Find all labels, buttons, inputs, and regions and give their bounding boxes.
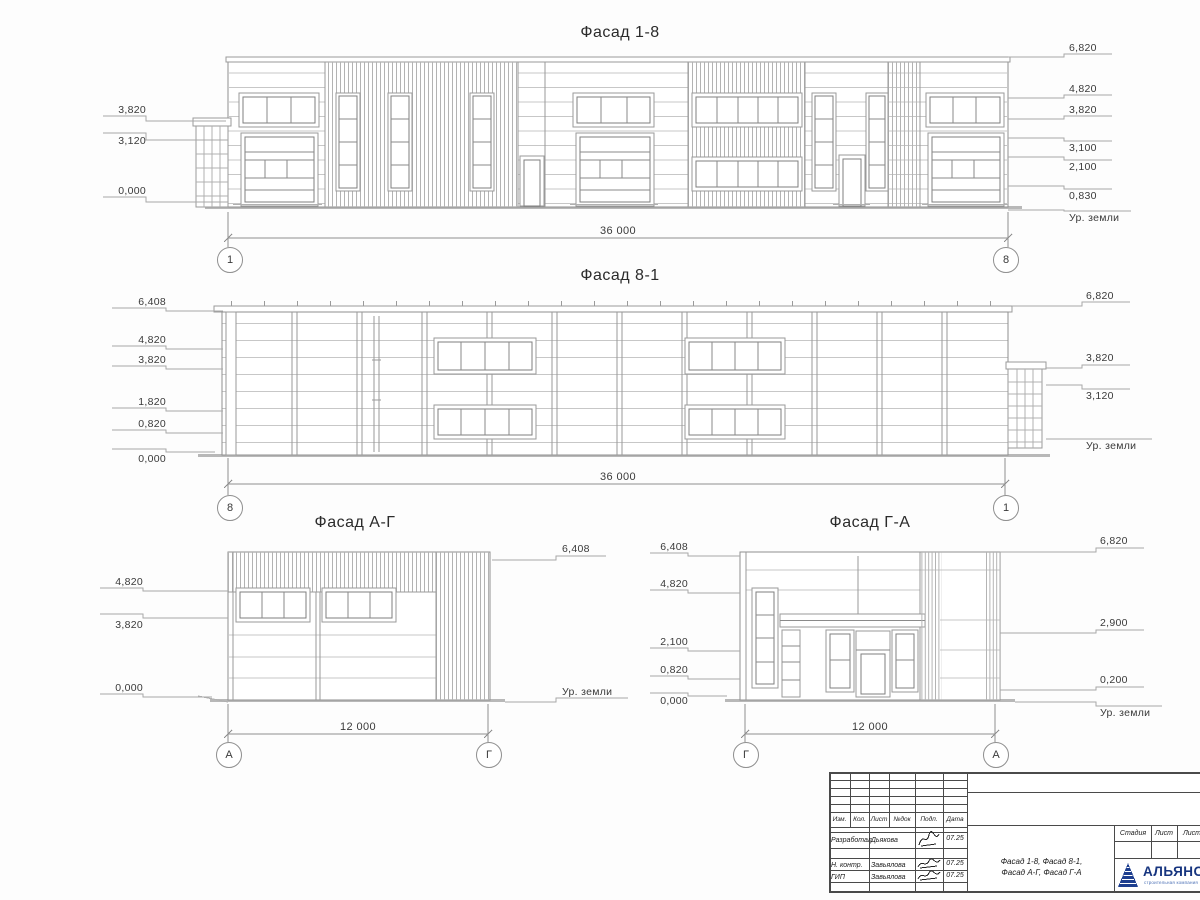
dimension-label: 12 000 — [308, 721, 408, 733]
elevation-mark: 6,408 — [645, 541, 688, 553]
signature-date: 07.25 — [943, 860, 967, 867]
document-title-line1: Фасад 1-8, Фасад 8-1, — [969, 856, 1114, 867]
axis-bubble: А — [216, 742, 242, 768]
facade-g-a-title: Фасад Г-А — [770, 514, 970, 532]
elevation-mark: Ур. земли — [1100, 707, 1150, 719]
elevation-mark: 0,000 — [110, 453, 166, 465]
facade-1-8-title: Фасад 1-8 — [520, 24, 720, 42]
facade-1-8-drawing — [103, 54, 1131, 247]
axis-bubble: А — [983, 742, 1009, 768]
drawing-sheet: { "drawing": { "facade_18": { "title": "… — [0, 0, 1200, 900]
revision-col-header: Подп. — [915, 813, 943, 826]
elevation-mark: 4,820 — [1069, 83, 1097, 95]
elevation-mark: 0,200 — [1100, 674, 1128, 686]
facade-8-1-title: Фасад 8-1 — [520, 267, 720, 285]
company-subtitle: строительная компания — [1144, 880, 1198, 885]
dimension-label: 36 000 — [568, 471, 668, 483]
elevation-mark: 3,820 — [102, 104, 146, 116]
signer-role: Н. контр. — [831, 860, 863, 871]
stage-header: Стадия — [1115, 827, 1151, 841]
elevation-mark: 3,120 — [102, 135, 146, 147]
dimension-label: 36 000 — [568, 225, 668, 237]
elevation-mark: 0,820 — [110, 418, 166, 430]
axis-bubble: 1 — [217, 247, 243, 273]
elevation-mark: 0,000 — [98, 682, 143, 694]
elevation-mark: 0,000 — [102, 185, 146, 197]
company-name: АЛЬЯНС — [1143, 864, 1200, 879]
facade-8-1-drawing — [112, 301, 1152, 495]
document-title: Фасад 1-8, Фасад 8-1, Фасад А-Г, Фасад Г… — [969, 856, 1114, 878]
elevation-mark: 2,100 — [645, 636, 688, 648]
elevation-mark: 6,408 — [562, 543, 590, 555]
elevation-mark: 3,820 — [98, 619, 143, 631]
elevation-mark: Ур. земли — [1086, 440, 1136, 452]
elevation-mark: 3,820 — [110, 354, 166, 366]
elevation-mark: 0,000 — [645, 695, 688, 707]
revision-col-header: Кол. — [850, 813, 869, 826]
facade-g-a-drawing — [650, 548, 1162, 742]
signer-name: Завьялова — [871, 860, 906, 871]
elevation-mark: Ур. земли — [562, 686, 612, 698]
axis-bubble: Г — [476, 742, 502, 768]
elevation-mark: 2,100 — [1069, 161, 1097, 173]
elevation-mark: Ур. земли — [1069, 212, 1119, 224]
axis-bubble: Г — [733, 742, 759, 768]
sheets-header: Лист — [1177, 827, 1200, 841]
elevation-mark: 3,120 — [1086, 390, 1114, 402]
signature-mark — [916, 858, 942, 870]
revision-col-header: Дата — [943, 813, 967, 826]
revision-col-header: Изм. — [829, 813, 850, 826]
elevation-mark: 4,820 — [110, 334, 166, 346]
document-title-line2: Фасад А-Г, Фасад Г-А — [969, 867, 1114, 878]
elevation-mark: 0,830 — [1069, 190, 1097, 202]
elevation-mark: 6,820 — [1069, 42, 1097, 54]
elevation-mark: 3,820 — [1069, 104, 1097, 116]
elevation-mark: 0,820 — [645, 664, 688, 676]
elevation-mark: 4,820 — [645, 578, 688, 590]
elevation-mark: 6,820 — [1100, 535, 1128, 547]
axis-bubble: 1 — [993, 495, 1019, 521]
elevation-mark: 3,100 — [1069, 142, 1097, 154]
revision-col-header: Лист — [869, 813, 889, 826]
signer-role: ГИП — [831, 872, 845, 883]
elevation-mark: 1,820 — [110, 396, 166, 408]
signer-name: Дьякова — [871, 835, 898, 846]
dimension-label: 12 000 — [820, 721, 920, 733]
signature-mark — [916, 830, 942, 848]
signature-mark — [916, 870, 942, 882]
elevation-mark: 4,820 — [98, 576, 143, 588]
drawing-canvas: .bld{fill:#fff;stroke:#8f8f8f;stroke-wid… — [0, 0, 1200, 900]
elevation-mark: 6,820 — [1086, 290, 1114, 302]
signer-name: Завьялова — [871, 872, 906, 883]
elevation-mark: 6,408 — [110, 296, 166, 308]
axis-bubble: 8 — [993, 247, 1019, 273]
title-block: Изм. Кол. Лист №док Подп. Дата Разработа… — [829, 772, 1200, 893]
revision-col-header: №док — [889, 813, 915, 826]
signer-role: Разработал — [831, 835, 872, 846]
elevation-mark: 3,820 — [1086, 352, 1114, 364]
signature-date: 07.25 — [943, 872, 967, 879]
facade-a-g-title: Фасад А-Г — [255, 514, 455, 532]
company-logo-icon — [1117, 861, 1139, 889]
signature-date: 07.25 — [943, 835, 967, 842]
facade-a-g-drawing — [100, 552, 628, 742]
elevation-mark: 2,900 — [1100, 617, 1128, 629]
axis-bubble: 8 — [217, 495, 243, 521]
sheet-header: Лист — [1151, 827, 1177, 841]
